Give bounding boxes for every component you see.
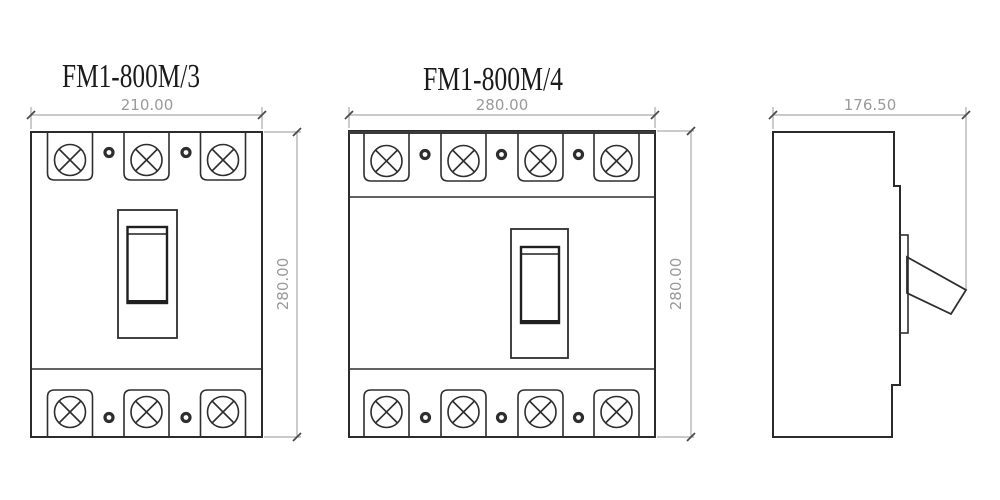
top-terminal-row xyxy=(364,133,639,181)
pilot-hole-icon xyxy=(182,149,190,157)
terminal-screw-icon xyxy=(601,146,632,177)
pilot-hole-icon xyxy=(498,414,506,422)
pilot-hole-icon xyxy=(105,149,113,157)
terminal-screw-icon xyxy=(448,146,479,177)
terminal-screw-icon xyxy=(371,397,402,428)
breaker-dimension-drawing: FM1-800M/3 210.00 280.00 xyxy=(0,0,1000,500)
pilot-hole-icon xyxy=(105,414,113,422)
front-view-4p: FM1-800M/4 280.00 280.00 xyxy=(345,61,695,441)
switch-handle xyxy=(521,247,559,323)
pilot-hole-icon xyxy=(498,151,506,159)
terminal-screw-icon xyxy=(448,397,479,428)
switch-handle xyxy=(128,227,168,303)
front-3p-width-label: 210.00 xyxy=(121,96,174,114)
side-view: 176.50 xyxy=(769,96,970,437)
pilot-hole-icon xyxy=(422,414,430,422)
front-3p-height-dimension: 280.00 xyxy=(264,128,301,441)
breaker-body-outline xyxy=(31,132,262,437)
bottom-terminal-row xyxy=(48,390,246,437)
front-4p-width-label: 280.00 xyxy=(476,96,529,114)
terminal-screw-icon xyxy=(131,145,162,176)
terminal-screw-icon xyxy=(55,397,86,428)
side-depth-label: 176.50 xyxy=(844,96,897,114)
front-4p-height-dimension: 280.00 xyxy=(657,127,695,441)
pilot-hole-icon xyxy=(421,151,429,159)
front-view-3p: FM1-800M/3 210.00 280.00 xyxy=(27,58,301,441)
terminal-screw-icon xyxy=(55,145,86,176)
side-toggle-handle xyxy=(907,257,966,314)
terminal-screw-icon xyxy=(371,146,402,177)
front-3p-height-label: 280.00 xyxy=(274,258,292,311)
front-4p-title: FM1-800M/4 xyxy=(423,61,563,98)
pilot-hole-icon xyxy=(575,414,583,422)
terminal-screw-icon xyxy=(131,397,162,428)
terminal-screw-icon xyxy=(601,397,632,428)
pilot-hole-icon xyxy=(575,151,583,159)
side-depth-dimension: 176.50 xyxy=(769,96,970,289)
pilot-hole-icon xyxy=(182,414,190,422)
front-4p-width-dimension: 280.00 xyxy=(345,96,659,128)
toggle-switch xyxy=(511,229,568,358)
terminal-screw-icon xyxy=(208,145,239,176)
terminal-screw-icon xyxy=(208,397,239,428)
terminal-screw-icon xyxy=(525,397,556,428)
toggle-switch xyxy=(118,210,177,338)
bottom-terminal-row xyxy=(364,390,639,437)
breaker-body-outline xyxy=(349,131,655,437)
front-4p-height-label: 280.00 xyxy=(667,258,685,311)
side-profile-outline xyxy=(773,132,900,437)
front-3p-width-dimension: 210.00 xyxy=(27,96,266,129)
front-3p-title: FM1-800M/3 xyxy=(62,58,200,95)
terminal-screw-icon xyxy=(525,146,556,177)
top-terminal-row xyxy=(48,132,246,180)
